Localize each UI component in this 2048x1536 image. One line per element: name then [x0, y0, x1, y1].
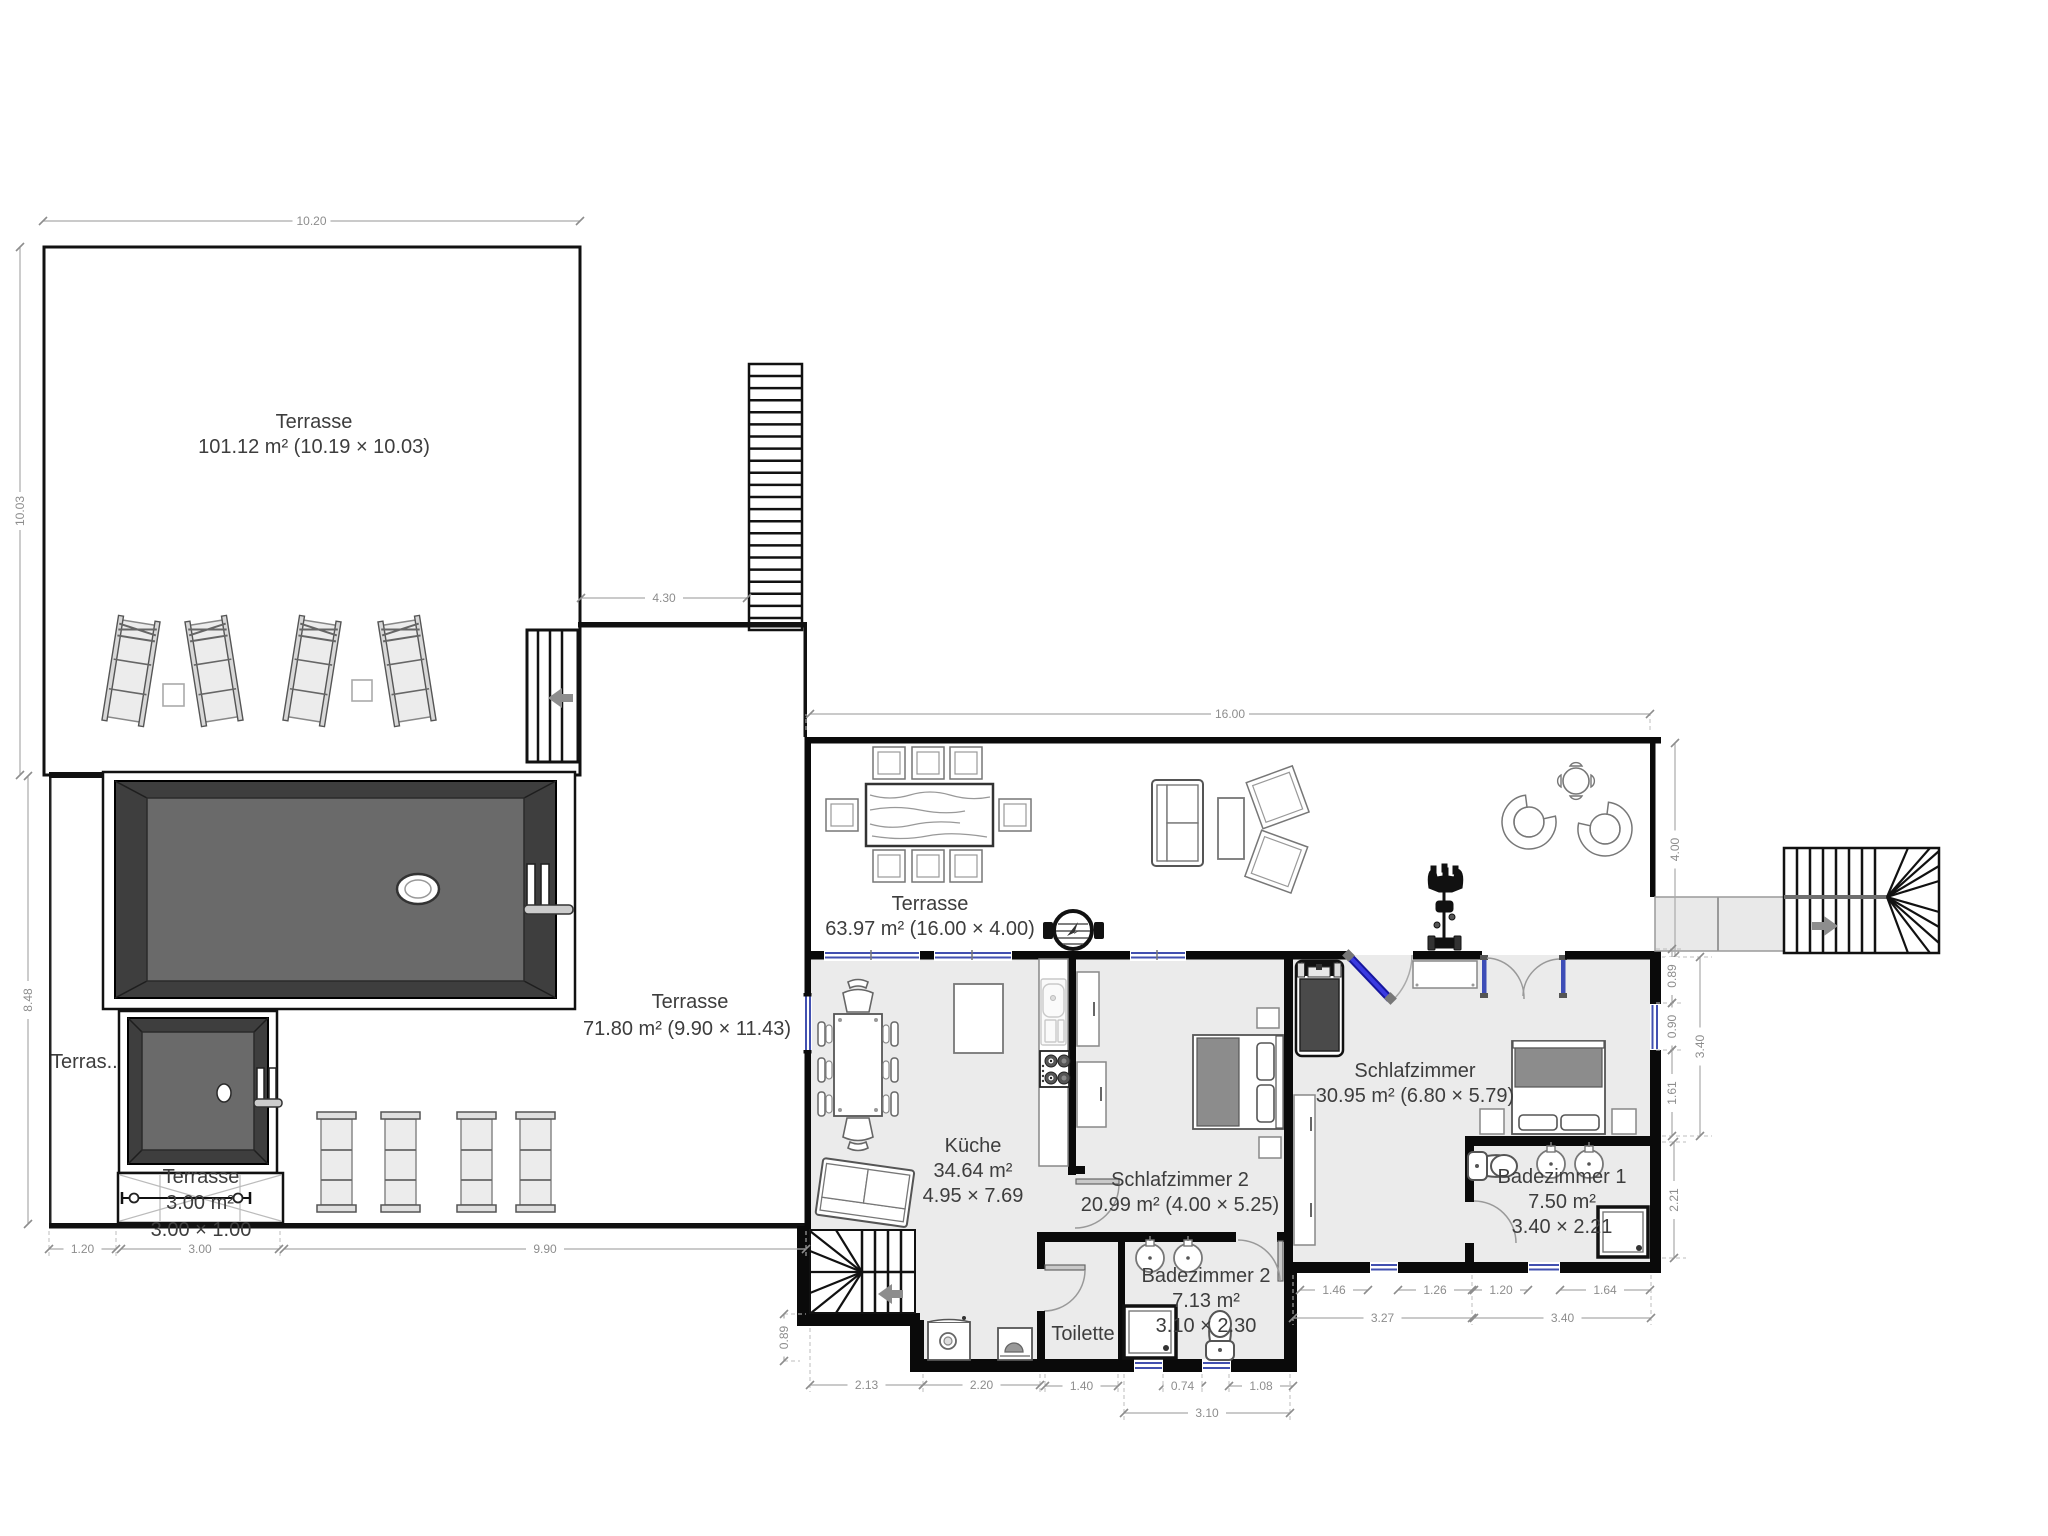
svg-text:9.90: 9.90 [533, 1242, 557, 1256]
svg-text:0.90: 0.90 [1665, 1014, 1679, 1038]
svg-text:63.97 m² (16.00 × 4.00): 63.97 m² (16.00 × 4.00) [825, 918, 1035, 940]
svg-text:3.40: 3.40 [1551, 1311, 1575, 1325]
svg-text:Schlafzimmer 2: Schlafzimmer 2 [1111, 1169, 1249, 1191]
svg-text:1.64: 1.64 [1593, 1283, 1617, 1297]
svg-text:34.64 m²: 34.64 m² [934, 1160, 1013, 1182]
svg-text:2.13: 2.13 [855, 1378, 879, 1392]
svg-text:1.20: 1.20 [1489, 1283, 1513, 1297]
svg-text:4.30: 4.30 [652, 591, 676, 605]
svg-text:20.99 m² (4.00 × 5.25): 20.99 m² (4.00 × 5.25) [1081, 1194, 1279, 1216]
svg-text:1.40: 1.40 [1070, 1379, 1094, 1393]
svg-text:Schlafzimmer: Schlafzimmer [1354, 1060, 1475, 1082]
svg-text:0.89: 0.89 [1665, 964, 1679, 988]
svg-text:8.48: 8.48 [21, 988, 35, 1012]
svg-text:Badezimmer 1: Badezimmer 1 [1498, 1166, 1627, 1188]
svg-text:4.00: 4.00 [1668, 837, 1682, 861]
svg-text:2.21: 2.21 [1667, 1188, 1681, 1212]
svg-text:1.20: 1.20 [71, 1242, 95, 1256]
svg-text:Terrasse: Terrasse [163, 1166, 240, 1188]
svg-text:7.50 m²: 7.50 m² [1528, 1191, 1596, 1213]
svg-text:Terrasse: Terrasse [276, 411, 353, 433]
svg-text:0.74: 0.74 [1171, 1379, 1195, 1393]
svg-text:3.10: 3.10 [1195, 1406, 1219, 1420]
svg-text:Küche: Küche [945, 1135, 1002, 1157]
svg-text:0.89: 0.89 [777, 1325, 791, 1349]
svg-text:2.20: 2.20 [970, 1378, 994, 1392]
svg-text:16.00: 16.00 [1215, 707, 1245, 721]
svg-text:Terrasse: Terrasse [892, 893, 969, 915]
svg-text:Terras..: Terras.. [51, 1051, 118, 1073]
svg-text:10.03: 10.03 [13, 496, 27, 526]
svg-text:3.00 × 1.00: 3.00 × 1.00 [151, 1219, 252, 1241]
svg-text:4.95 × 7.69: 4.95 × 7.69 [923, 1185, 1024, 1207]
svg-text:3.00 m²: 3.00 m² [166, 1192, 234, 1214]
svg-text:3.10 × 2.30: 3.10 × 2.30 [1156, 1315, 1257, 1337]
svg-text:1.26: 1.26 [1423, 1283, 1447, 1297]
svg-text:3.40: 3.40 [1693, 1034, 1707, 1058]
svg-text:Badezimmer 2: Badezimmer 2 [1142, 1265, 1271, 1287]
svg-text:Terrasse: Terrasse [652, 991, 729, 1013]
svg-text:3.27: 3.27 [1371, 1311, 1395, 1325]
svg-text:10.20: 10.20 [296, 214, 326, 228]
svg-text:1.61: 1.61 [1665, 1081, 1679, 1105]
svg-text:3.40 × 2.21: 3.40 × 2.21 [1512, 1216, 1613, 1238]
svg-text:1.46: 1.46 [1322, 1283, 1346, 1297]
svg-text:30.95 m² (6.80 × 5.79): 30.95 m² (6.80 × 5.79) [1316, 1085, 1514, 1107]
svg-text:3.00: 3.00 [188, 1242, 212, 1256]
svg-text:Toilette: Toilette [1051, 1323, 1114, 1345]
svg-text:101.12 m² (10.19 × 10.03): 101.12 m² (10.19 × 10.03) [198, 436, 430, 458]
svg-text:71.80 m² (9.90 × 11.43): 71.80 m² (9.90 × 11.43) [583, 1018, 791, 1040]
svg-text:1.08: 1.08 [1249, 1379, 1273, 1393]
svg-text:7.13 m²: 7.13 m² [1172, 1290, 1240, 1312]
